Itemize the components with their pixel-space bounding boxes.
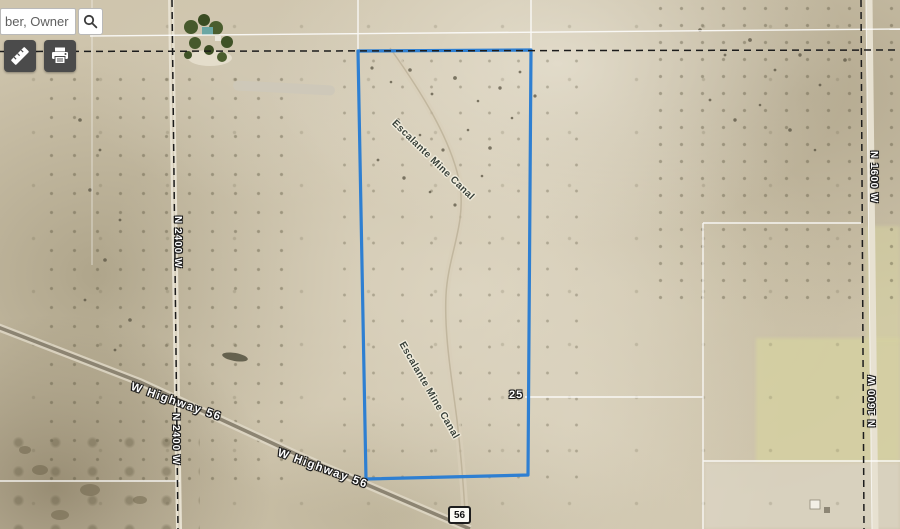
search-bar: [0, 8, 103, 35]
print-button[interactable]: [44, 40, 76, 72]
airstrip: [233, 80, 335, 95]
measure-tool-button[interactable]: [4, 40, 36, 72]
farmstead-trees: [184, 14, 233, 66]
canal-trace: [390, 48, 466, 529]
route-56-shield: 56: [448, 506, 471, 524]
road-n1600w: [866, 0, 875, 529]
parcel-map-app: W Highway 56 W Highway 56 N 2400 W N 240…: [0, 0, 900, 529]
search-button[interactable]: [78, 8, 103, 35]
brush-blob: [222, 351, 249, 363]
printer-icon: [49, 45, 71, 67]
search-input[interactable]: [0, 8, 76, 35]
ruler-icon: [9, 45, 31, 67]
dark-terrain-blobs: [19, 446, 147, 520]
small-buildings: [810, 500, 830, 513]
magnifier-icon: [83, 14, 98, 29]
map-vector-overlay: [0, 0, 900, 529]
farm-building: [202, 27, 213, 35]
parcel-boundary[interactable]: [358, 50, 531, 479]
